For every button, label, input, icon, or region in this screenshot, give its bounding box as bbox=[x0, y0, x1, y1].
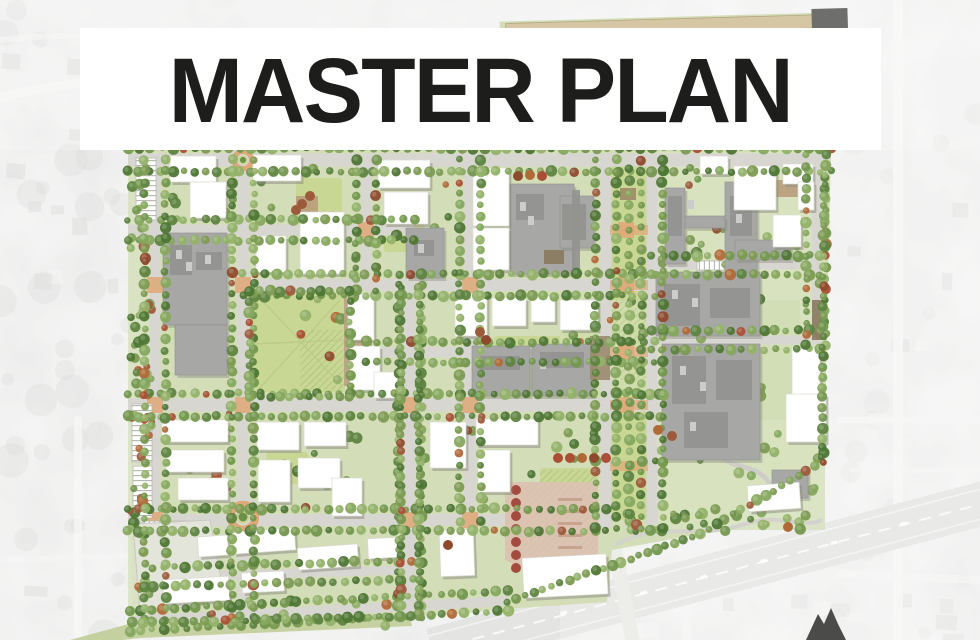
building-white bbox=[439, 529, 475, 576]
building-white bbox=[773, 215, 801, 247]
page-title: MASTER PLAN bbox=[169, 45, 792, 137]
building-white bbox=[304, 422, 346, 446]
building-white bbox=[367, 537, 398, 559]
building-white bbox=[190, 182, 226, 218]
building-gray bbox=[175, 325, 227, 375]
building-white bbox=[257, 422, 299, 450]
building-white bbox=[162, 420, 228, 442]
building-white bbox=[197, 535, 228, 557]
building-white bbox=[258, 460, 290, 502]
title-banner: MASTER PLAN bbox=[80, 28, 881, 150]
building-gray bbox=[685, 216, 725, 228]
building-white bbox=[492, 298, 526, 326]
building-gray bbox=[532, 344, 594, 396]
master-plan-page: MASTER PLAN bbox=[0, 0, 980, 640]
building-white bbox=[178, 478, 228, 500]
building-white bbox=[792, 348, 820, 400]
building-white bbox=[166, 450, 224, 472]
